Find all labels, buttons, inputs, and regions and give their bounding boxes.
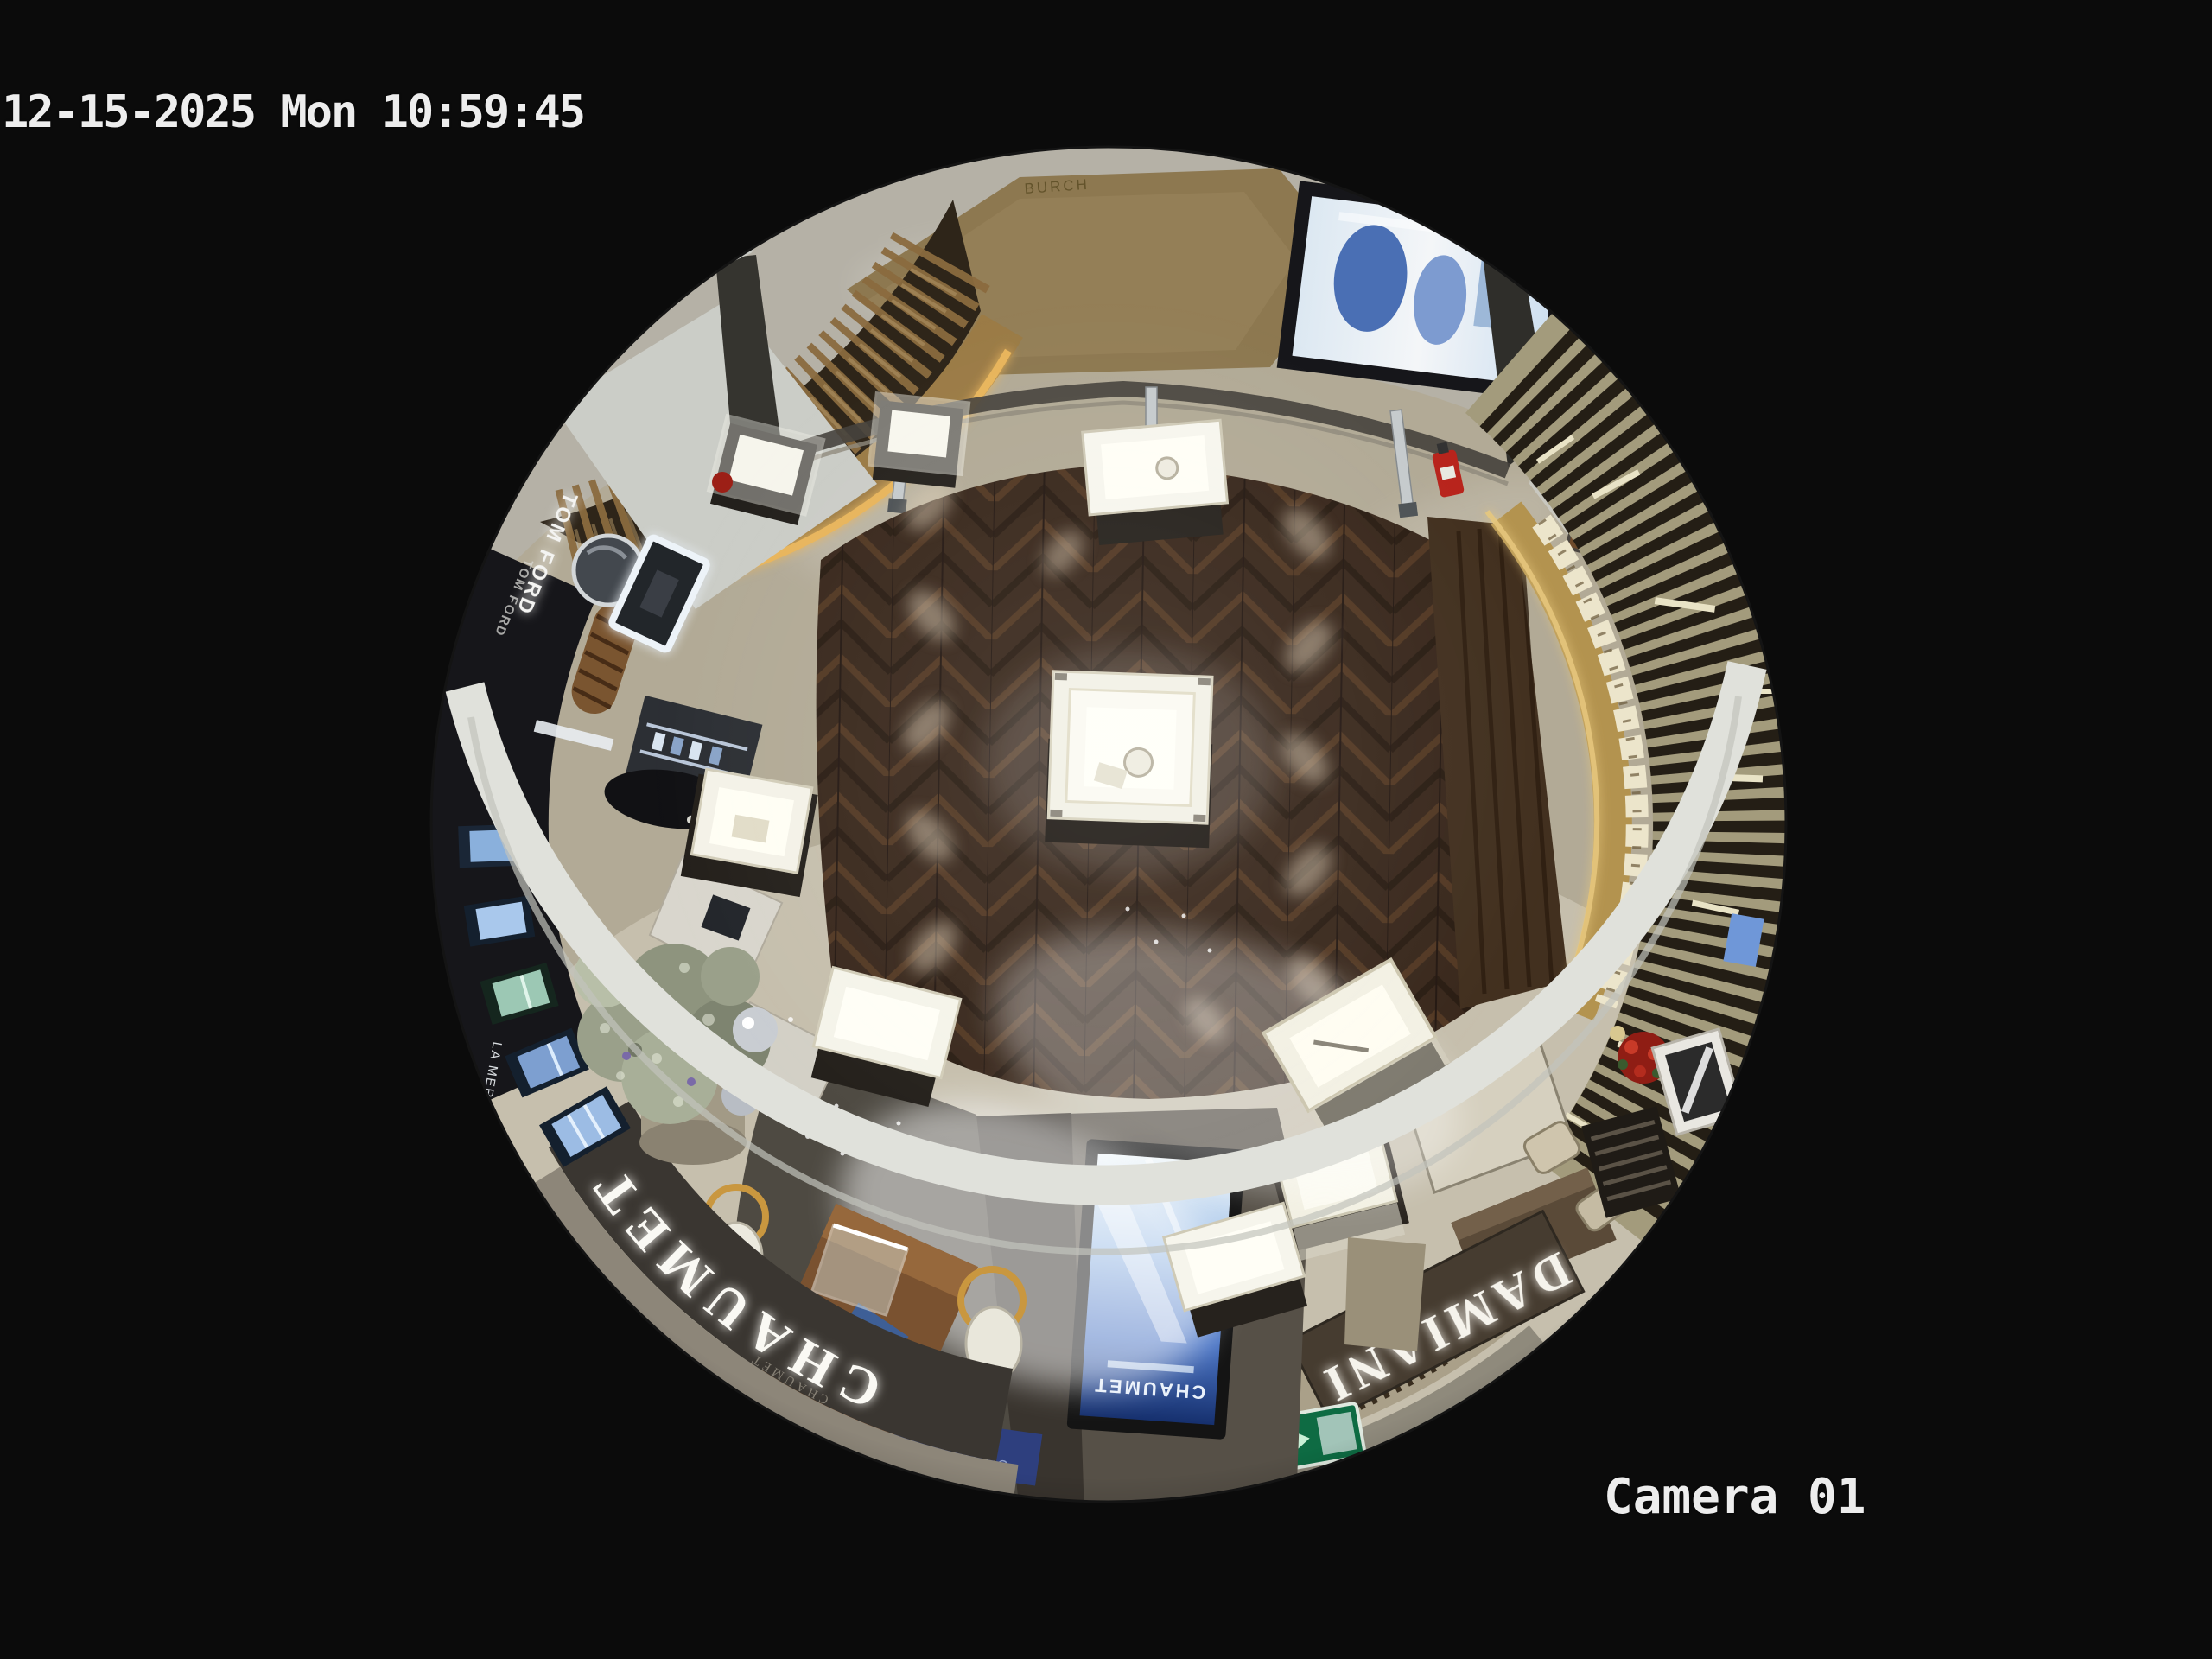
fisheye-camera-view: BURCH <box>0 0 2212 1659</box>
osd-timestamp: 12-15-2025 Mon 10:59:45 <box>2 86 584 138</box>
lens-vignette <box>431 147 1786 1502</box>
osd-camera-label: Camera 01 <box>1604 1469 1866 1525</box>
cctv-frame: BURCH <box>0 0 2212 1659</box>
